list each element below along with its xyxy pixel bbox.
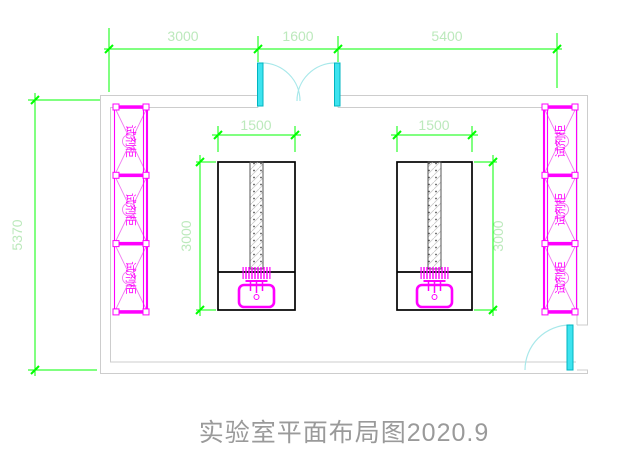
cabinet-label: 试剂柜 xyxy=(553,125,567,158)
reagent-cabinet: 试剂柜 xyxy=(115,108,148,174)
cabinet-label: 试剂柜 xyxy=(553,193,567,226)
dim-top-right-bay: 5400 xyxy=(431,28,462,44)
dim-entrance-opening: 1600 xyxy=(282,28,313,44)
room-walls xyxy=(101,96,588,374)
reagent-shelf-strip xyxy=(428,162,441,269)
dimension-room-depth: 5370 xyxy=(9,93,100,376)
dim-bench-left-length: 3000 xyxy=(178,220,194,251)
reagent-shelf-strip xyxy=(250,162,263,269)
reagent-cabinets-right: 试剂柜 试剂柜 试剂柜 xyxy=(542,104,578,315)
reagent-cabinets-left: 试剂柜 试剂柜 试剂柜 xyxy=(113,104,149,315)
floor-plan-svg: 试剂柜 试剂柜 试剂柜 试剂柜 试剂柜 xyxy=(0,0,619,469)
cabinet-label: 试剂柜 xyxy=(553,261,567,294)
dim-room-depth: 5370 xyxy=(9,219,25,250)
dimension-top: 3000 1600 5400 xyxy=(104,28,562,92)
reagent-cabinet: 试剂柜 xyxy=(544,108,577,174)
dim-bench-left-width: 1500 xyxy=(240,117,271,133)
door-leaf xyxy=(567,325,573,370)
bench-right xyxy=(397,162,472,310)
door-leaf xyxy=(258,63,264,106)
dim-bench-right-width: 1500 xyxy=(418,117,449,133)
door-swing-arc xyxy=(525,325,570,370)
drawing-title: 实验室平面布局图2020.9 xyxy=(199,419,489,447)
side-door xyxy=(525,325,589,370)
bench-left xyxy=(218,162,295,310)
reagent-cabinet: 试剂柜 xyxy=(544,176,577,242)
cabinet-label: 试剂柜 xyxy=(124,193,138,226)
dim-top-left-bay: 3000 xyxy=(167,28,198,44)
reagent-cabinet: 试剂柜 xyxy=(115,245,148,311)
reagent-cabinet: 试剂柜 xyxy=(544,245,577,311)
cabinet-label: 试剂柜 xyxy=(124,261,138,294)
reagent-cabinet: 试剂柜 xyxy=(115,176,148,242)
door-leaf xyxy=(335,63,341,106)
dim-bench-right-length: 3000 xyxy=(490,220,506,251)
cabinet-label: 试剂柜 xyxy=(124,125,138,158)
entrance-double-door xyxy=(258,63,341,109)
floor-plan-canvas: 试剂柜 试剂柜 试剂柜 试剂柜 试剂柜 xyxy=(0,0,619,469)
